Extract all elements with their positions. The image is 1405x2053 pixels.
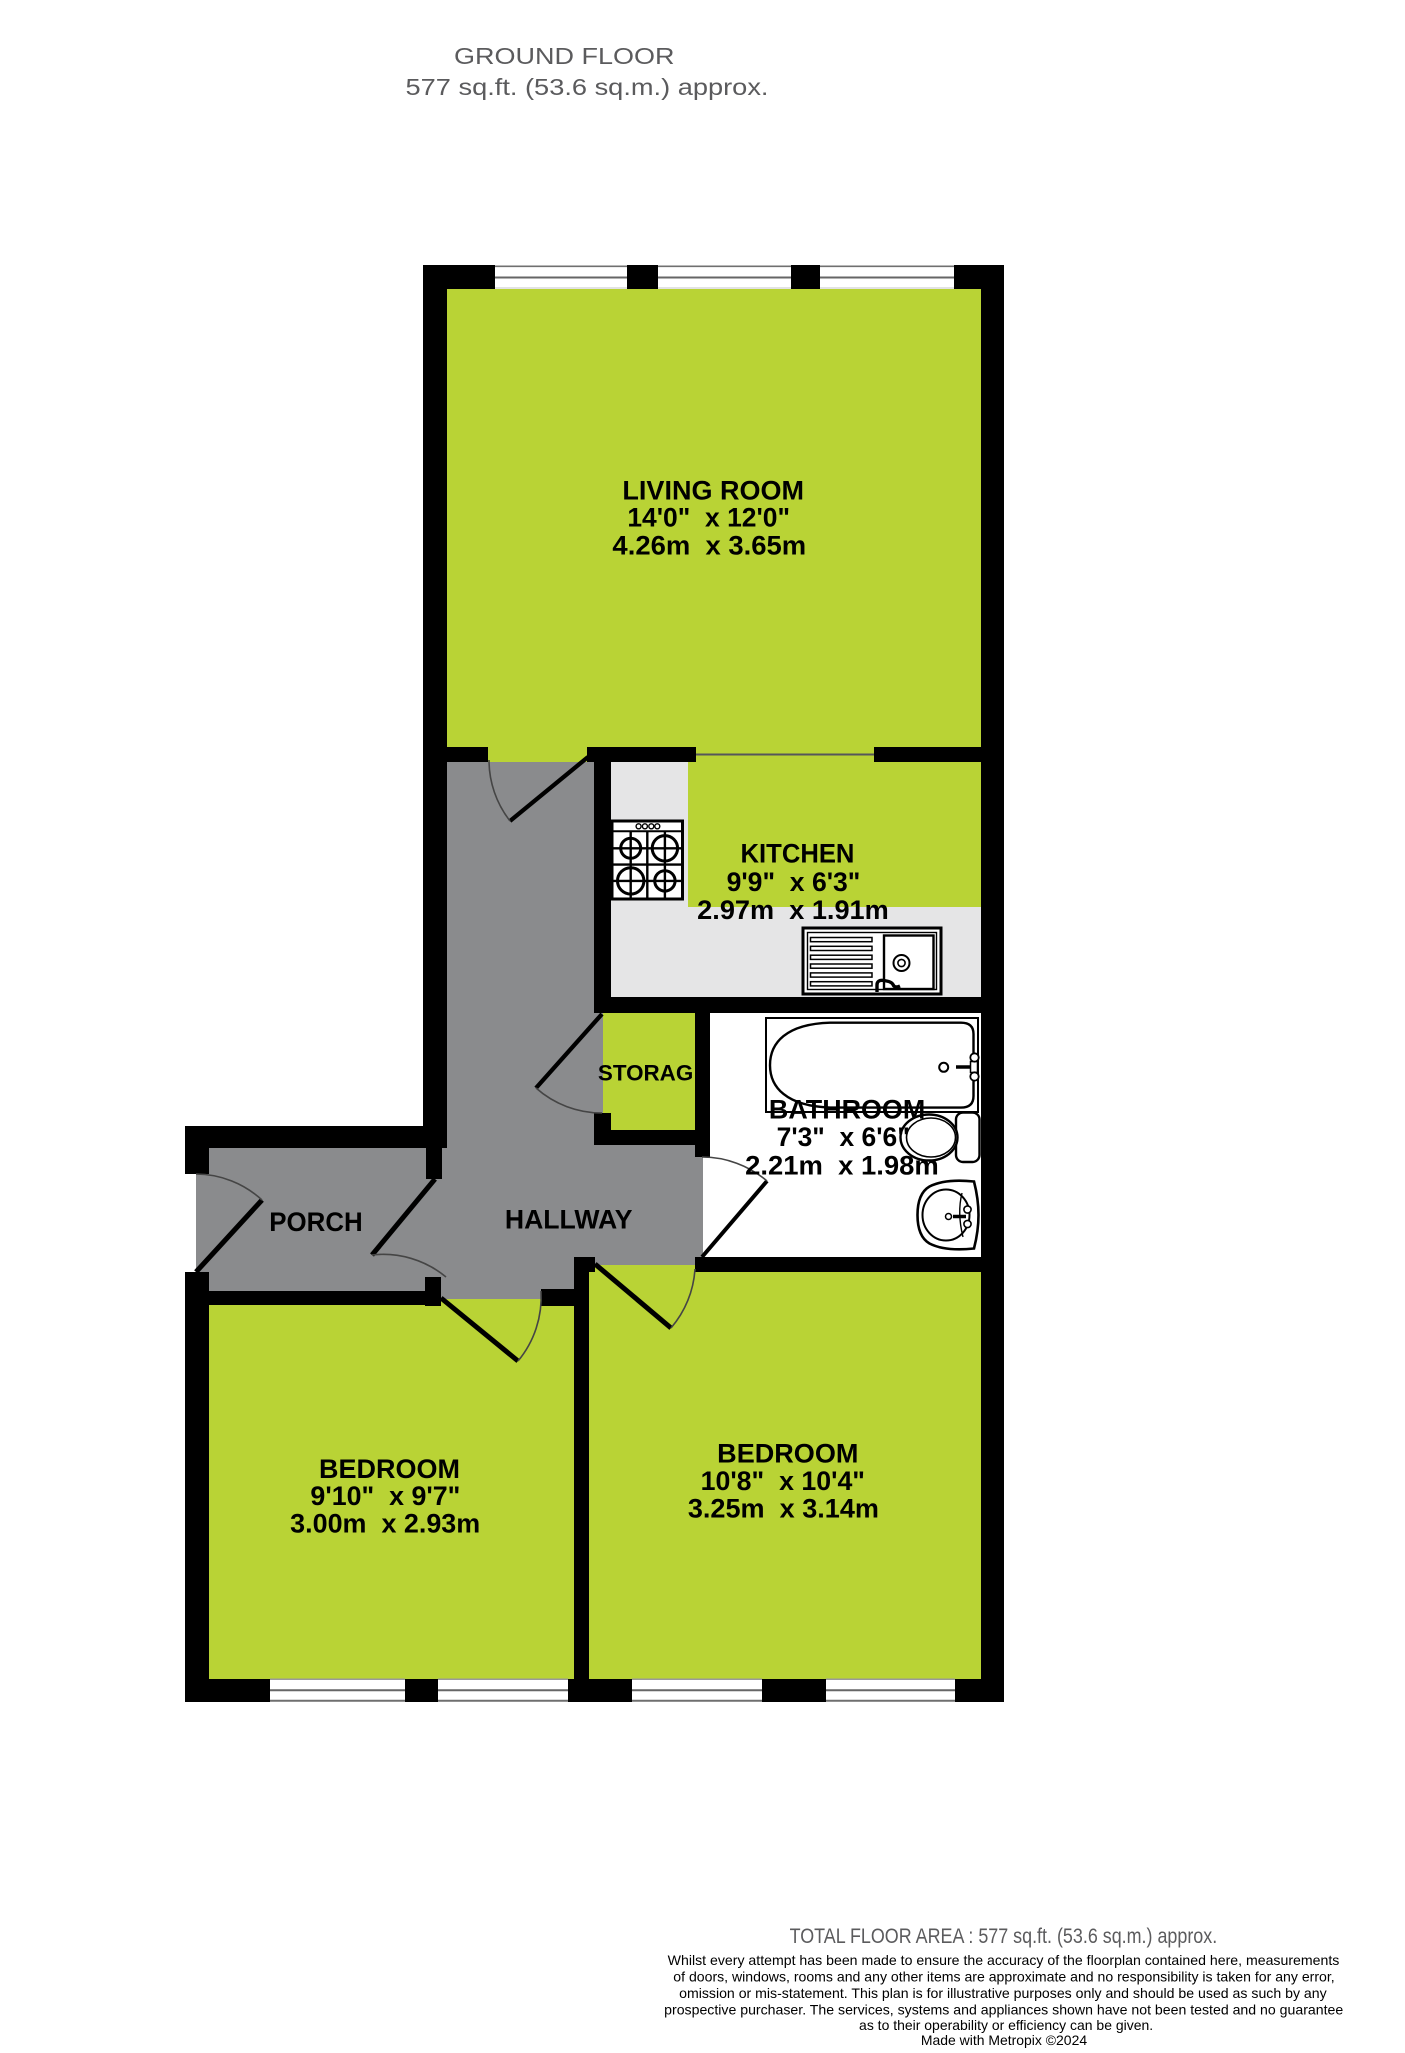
svg-text:of doors, windows, rooms and a: of doors, windows, rooms and any other i… [673, 1969, 1334, 1984]
svg-text:3.00m x 2.93m: 3.00m x 2.93m [290, 1509, 480, 1539]
svg-text:Whilst every attempt has been: Whilst every attempt has been made to en… [668, 1953, 1340, 1968]
svg-text:577 sq.ft. (53.6 sq.m.) approx: 577 sq.ft. (53.6 sq.m.) approx. [406, 74, 769, 100]
svg-text:GROUND FLOOR: GROUND FLOOR [454, 43, 675, 69]
svg-text:Made with Metropix ©2024: Made with Metropix ©2024 [921, 2033, 1088, 2048]
svg-text:2.21m x 1.98m: 2.21m x 1.98m [745, 1150, 939, 1180]
svg-text:TOTAL FLOOR AREA : 577 sq.ft.: TOTAL FLOOR AREA : 577 sq.ft. (53.6 sq.m… [790, 1925, 1218, 1948]
svg-text:9'10" x 9'7": 9'10" x 9'7" [310, 1481, 460, 1511]
svg-text:14'0" x 12'0": 14'0" x 12'0" [627, 502, 790, 532]
svg-text:KITCHEN: KITCHEN [741, 839, 855, 869]
svg-text:10'8" x 10'4": 10'8" x 10'4" [701, 1466, 865, 1496]
svg-text:9'9" x 6'3": 9'9" x 6'3" [727, 867, 861, 897]
svg-text:BATHROOM: BATHROOM [769, 1094, 925, 1124]
svg-text:BEDROOM: BEDROOM [319, 1454, 460, 1484]
svg-text:PORCH: PORCH [269, 1207, 362, 1237]
svg-text:STORAGE: STORAGE [598, 1061, 708, 1086]
svg-text:LIVING ROOM: LIVING ROOM [622, 476, 804, 506]
svg-text:prospective purchaser. The ser: prospective purchaser. The services, sys… [664, 2003, 1343, 2018]
svg-text:BEDROOM: BEDROOM [717, 1438, 858, 1468]
svg-text:3.25m x 3.14m: 3.25m x 3.14m [688, 1494, 879, 1524]
svg-text:omission or mis-statement. Thi: omission or mis-statement. This plan is … [679, 1986, 1327, 2001]
svg-text:2.97m x 1.91m: 2.97m x 1.91m [697, 895, 889, 925]
svg-text:4.26m x 3.65m: 4.26m x 3.65m [612, 530, 806, 560]
svg-text:as to their operability or eff: as to their operability or efficiency ca… [859, 2018, 1153, 2033]
svg-text:HALLWAY: HALLWAY [505, 1204, 633, 1234]
svg-text:7'3" x 6'6": 7'3" x 6'6" [777, 1122, 910, 1152]
